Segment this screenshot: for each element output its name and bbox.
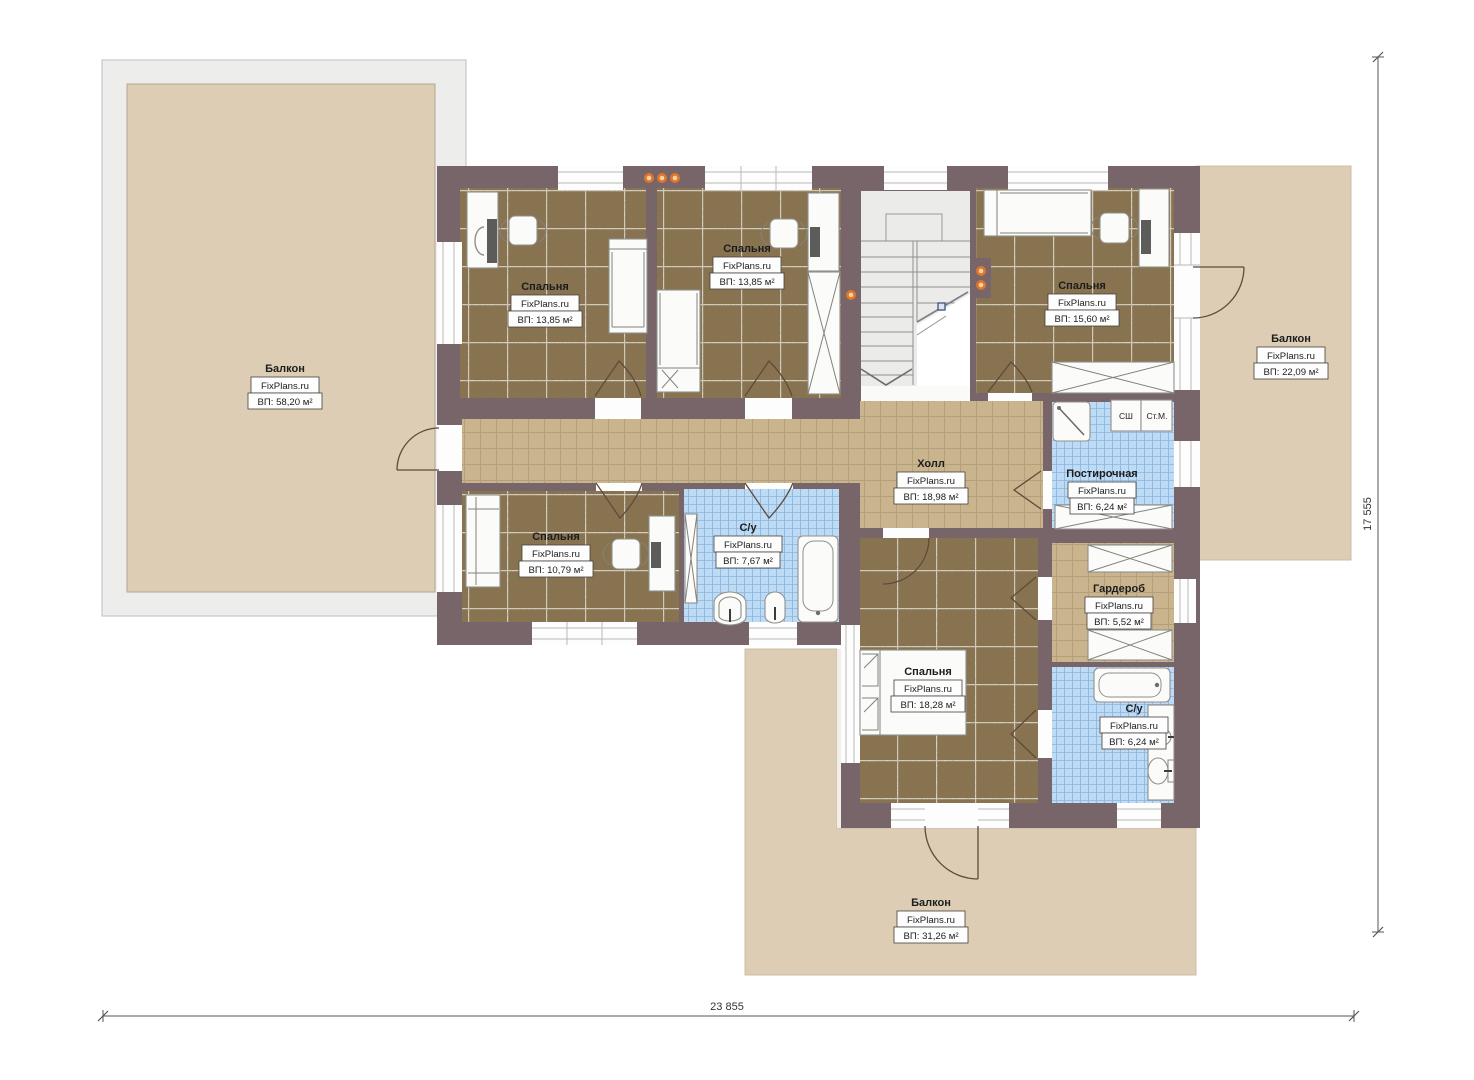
svg-text:ВП: 22,09 м²: ВП: 22,09 м² <box>1263 367 1319 378</box>
svg-text:ВП: 31,26 м²: ВП: 31,26 м² <box>903 931 959 942</box>
svg-text:ВП: 58,20 м²: ВП: 58,20 м² <box>257 397 313 408</box>
svg-text:Спальня: Спальня <box>532 531 580 543</box>
svg-text:23 855: 23 855 <box>710 1001 744 1013</box>
svg-text:ВП: 6,24 м²: ВП: 6,24 м² <box>1077 502 1128 513</box>
svg-text:FixPlans.ru: FixPlans.ru <box>723 261 771 272</box>
svg-text:FixPlans.ru: FixPlans.ru <box>1058 298 1106 309</box>
svg-text:Ст.М.: Ст.М. <box>1147 411 1168 421</box>
svg-text:Балкон: Балкон <box>265 363 305 375</box>
svg-text:FixPlans.ru: FixPlans.ru <box>521 299 569 310</box>
svg-text:ВП: 13,85 м²: ВП: 13,85 м² <box>719 277 775 288</box>
svg-text:ВП: 18,28 м²: ВП: 18,28 м² <box>900 700 956 711</box>
svg-text:FixPlans.ru: FixPlans.ru <box>907 915 955 926</box>
svg-text:С/у: С/у <box>739 522 757 534</box>
svg-text:С/у: С/у <box>1125 703 1143 715</box>
svg-text:ВП: 18,98 м²: ВП: 18,98 м² <box>903 492 959 503</box>
svg-text:Спальня: Спальня <box>723 243 771 255</box>
svg-text:FixPlans.ru: FixPlans.ru <box>1267 351 1315 362</box>
svg-text:Балкон: Балкон <box>1271 333 1311 345</box>
svg-text:Холл: Холл <box>917 458 945 470</box>
svg-text:ВП: 7,67 м²: ВП: 7,67 м² <box>723 556 774 567</box>
svg-text:FixPlans.ru: FixPlans.ru <box>907 476 955 487</box>
svg-text:ВП: 10,79 м²: ВП: 10,79 м² <box>528 565 584 576</box>
svg-text:17 555: 17 555 <box>1362 497 1374 531</box>
svg-text:ВП: 13,85 м²: ВП: 13,85 м² <box>517 315 573 326</box>
svg-text:ВП: 15,60 м²: ВП: 15,60 м² <box>1054 314 1110 325</box>
svg-text:FixPlans.ru: FixPlans.ru <box>532 549 580 560</box>
svg-text:FixPlans.ru: FixPlans.ru <box>1095 601 1143 612</box>
svg-text:Постирочная: Постирочная <box>1066 468 1137 480</box>
svg-text:FixPlans.ru: FixPlans.ru <box>261 381 309 392</box>
svg-text:FixPlans.ru: FixPlans.ru <box>724 540 772 551</box>
svg-text:Спальня: Спальня <box>521 281 569 293</box>
svg-text:Гардероб: Гардероб <box>1093 583 1145 595</box>
svg-text:Спальня: Спальня <box>904 666 952 678</box>
svg-text:FixPlans.ru: FixPlans.ru <box>1110 721 1158 732</box>
svg-text:СШ: СШ <box>1119 411 1133 421</box>
svg-text:FixPlans.ru: FixPlans.ru <box>904 684 952 695</box>
svg-text:Балкон: Балкон <box>911 897 951 909</box>
svg-text:ВП: 6,24 м²: ВП: 6,24 м² <box>1109 737 1160 748</box>
svg-text:FixPlans.ru: FixPlans.ru <box>1078 486 1126 497</box>
svg-text:Спальня: Спальня <box>1058 280 1106 292</box>
svg-text:ВП: 5,52 м²: ВП: 5,52 м² <box>1094 617 1145 628</box>
